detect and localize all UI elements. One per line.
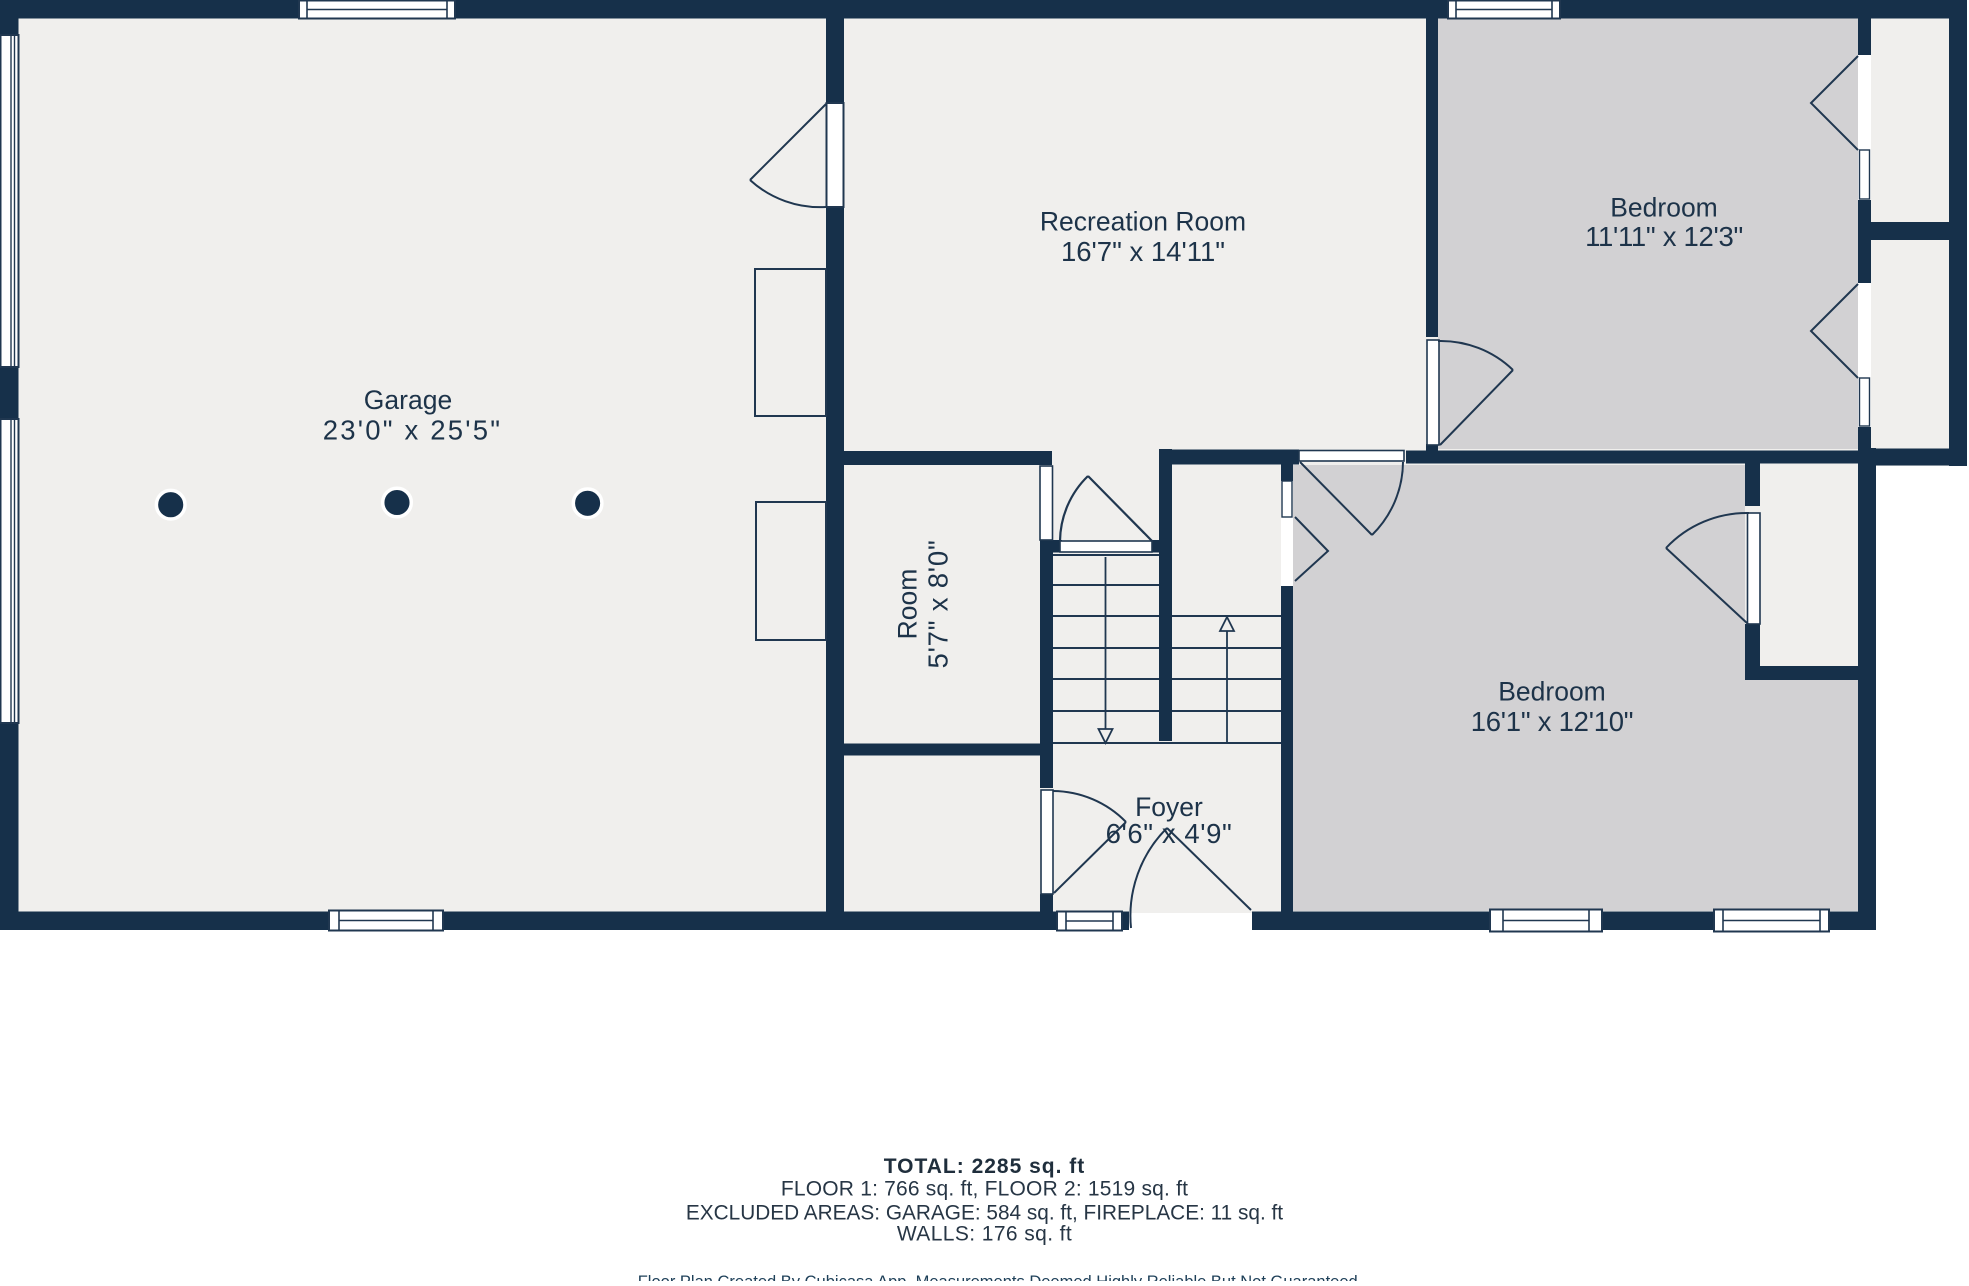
svg-text:TOTAL: 2285 sq. ft: TOTAL: 2285 sq. ft [884,1155,1086,1178]
svg-text:WALLS: 176 sq. ft: WALLS: 176 sq. ft [897,1223,1072,1246]
svg-text:Room: Room [893,569,923,640]
svg-text:FLOOR 1: 766 sq. ft, FLOOR 2:: FLOOR 1: 766 sq. ft, FLOOR 2: 1519 sq. f… [781,1178,1188,1201]
svg-text:Floor Plan Created By Cubicasa: Floor Plan Created By Cubicasa App. Meas… [638,1273,1363,1281]
svg-text:16'1" x 12'10": 16'1" x 12'10" [1471,706,1634,737]
svg-text:6'6" x 4'9": 6'6" x 4'9" [1106,818,1233,849]
svg-text:EXCLUDED AREAS: GARAGE: 584 sq: EXCLUDED AREAS: GARAGE: 584 sq. ft, FIRE… [686,1202,1283,1225]
svg-text:Bedroom: Bedroom [1610,193,1718,223]
svg-text:Bedroom: Bedroom [1498,677,1606,707]
svg-text:16'7" x 14'11": 16'7" x 14'11" [1061,236,1225,267]
svg-text:Garage: Garage [364,385,452,415]
svg-text:Recreation Room: Recreation Room [1040,207,1246,237]
svg-text:23'0" x 25'5": 23'0" x 25'5" [323,415,502,446]
svg-text:11'11" x 12'3": 11'11" x 12'3" [1585,221,1743,252]
svg-text:5'7" x 8'0": 5'7" x 8'0" [923,539,954,668]
